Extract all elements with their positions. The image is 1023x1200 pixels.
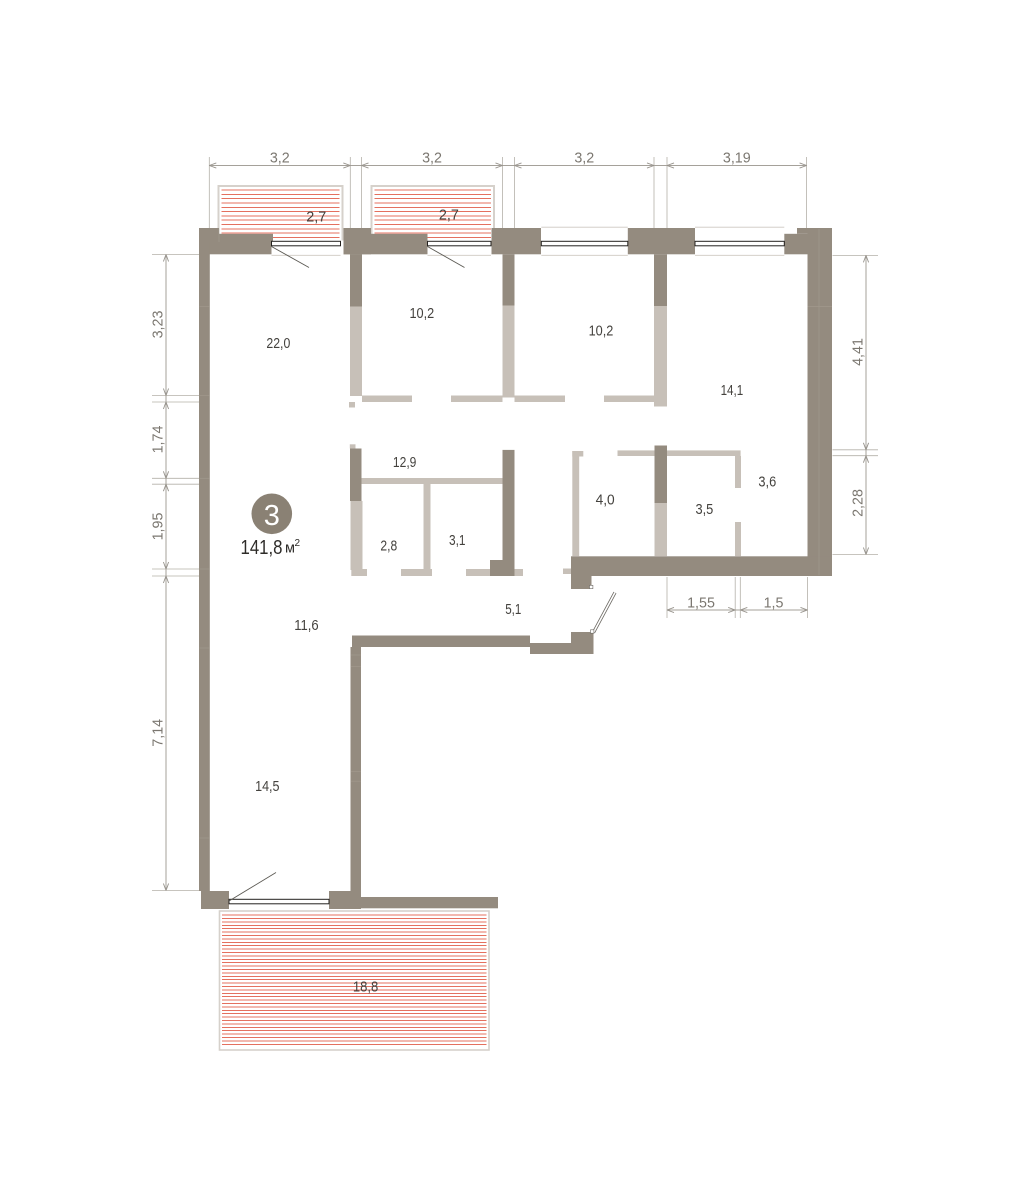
svg-text:10,2: 10,2 bbox=[410, 305, 435, 322]
svg-text:3,6: 3,6 bbox=[758, 474, 776, 491]
svg-text:7,14: 7,14 bbox=[150, 719, 166, 747]
svg-text:11,6: 11,6 bbox=[294, 617, 318, 634]
svg-text:м: м bbox=[285, 541, 295, 557]
svg-text:1,5: 1,5 bbox=[764, 596, 784, 612]
svg-text:141,8: 141,8 bbox=[241, 537, 283, 559]
svg-text:4,0: 4,0 bbox=[596, 491, 615, 508]
svg-text:22,0: 22,0 bbox=[266, 335, 290, 352]
svg-text:3,2: 3,2 bbox=[422, 151, 442, 167]
svg-text:3,2: 3,2 bbox=[574, 151, 594, 167]
svg-text:2,8: 2,8 bbox=[380, 538, 397, 555]
svg-text:2: 2 bbox=[295, 538, 301, 549]
svg-text:3,2: 3,2 bbox=[270, 151, 290, 167]
svg-text:3,1: 3,1 bbox=[449, 532, 466, 549]
svg-text:2,7: 2,7 bbox=[439, 207, 459, 224]
svg-text:1,74: 1,74 bbox=[150, 426, 166, 454]
svg-text:10,2: 10,2 bbox=[589, 322, 614, 339]
svg-text:1,55: 1,55 bbox=[687, 596, 715, 612]
svg-text:2,28: 2,28 bbox=[851, 489, 867, 517]
svg-text:5,1: 5,1 bbox=[505, 601, 521, 618]
svg-text:18,8: 18,8 bbox=[353, 978, 378, 995]
svg-text:3: 3 bbox=[264, 500, 280, 532]
svg-text:3,5: 3,5 bbox=[696, 501, 714, 518]
svg-text:14,5: 14,5 bbox=[255, 778, 279, 795]
svg-text:3,19: 3,19 bbox=[723, 151, 751, 167]
svg-text:1,95: 1,95 bbox=[150, 513, 166, 541]
svg-text:12,9: 12,9 bbox=[393, 454, 417, 471]
svg-text:3,23: 3,23 bbox=[150, 311, 166, 339]
svg-text:2,7: 2,7 bbox=[306, 209, 326, 226]
svg-text:4,41: 4,41 bbox=[851, 338, 867, 366]
svg-text:14,1: 14,1 bbox=[721, 382, 744, 399]
